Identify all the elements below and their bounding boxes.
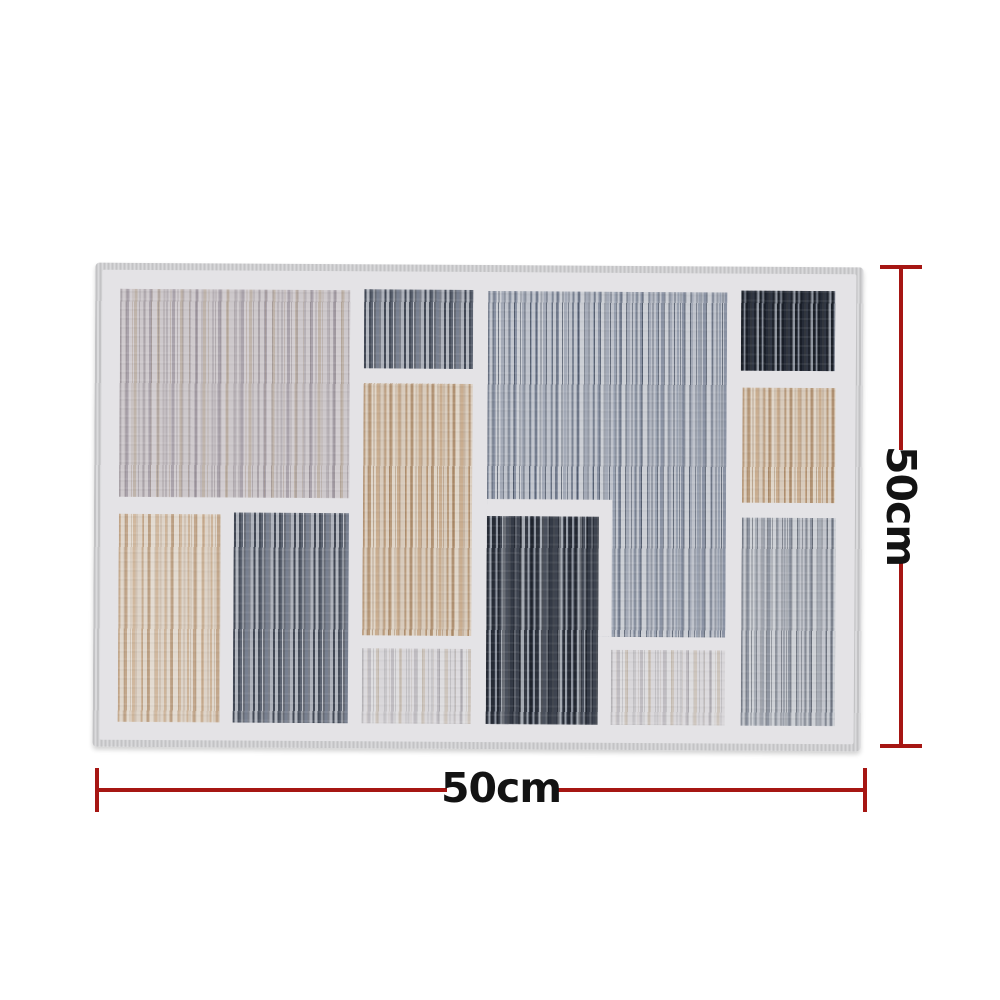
width-dimension-cap-left (95, 768, 99, 812)
rug-panel-top-right-small (741, 291, 835, 372)
width-dimension-line-right (555, 788, 865, 792)
product-image-stage: 50cm 50cm (0, 0, 1000, 1000)
rug-panel-bottom-right-gray (741, 518, 836, 727)
rug (93, 263, 864, 752)
height-dimension-cap-bottom (880, 744, 922, 748)
rug-panel-bottom-left-dark (233, 513, 349, 724)
height-dimension-line-upper (899, 267, 903, 450)
rug-panel-bottom-mid-pale-left (362, 648, 471, 724)
width-dimension-label: 50cm (439, 766, 563, 810)
height-dimension-label: 50cm (879, 441, 923, 571)
rug-panel-upper-mid-small (364, 289, 473, 369)
rug-panel-top-left (119, 289, 350, 498)
width-dimension-line-left (97, 788, 447, 792)
height-dimension-line-lower (899, 563, 903, 746)
rug-panel-mid-tan-column (362, 383, 473, 636)
width-dimension-cap-right (863, 768, 867, 812)
height-dimension-cap-top (880, 265, 922, 269)
rug-panel-bottom-mid-pale-right (611, 650, 725, 726)
rug-panel-bottom-left-tan (118, 514, 221, 723)
rug-panels (95, 263, 863, 268)
rug-panel-bottom-mid-dark (486, 516, 599, 725)
rug-panel-right-tan-small (742, 388, 836, 504)
